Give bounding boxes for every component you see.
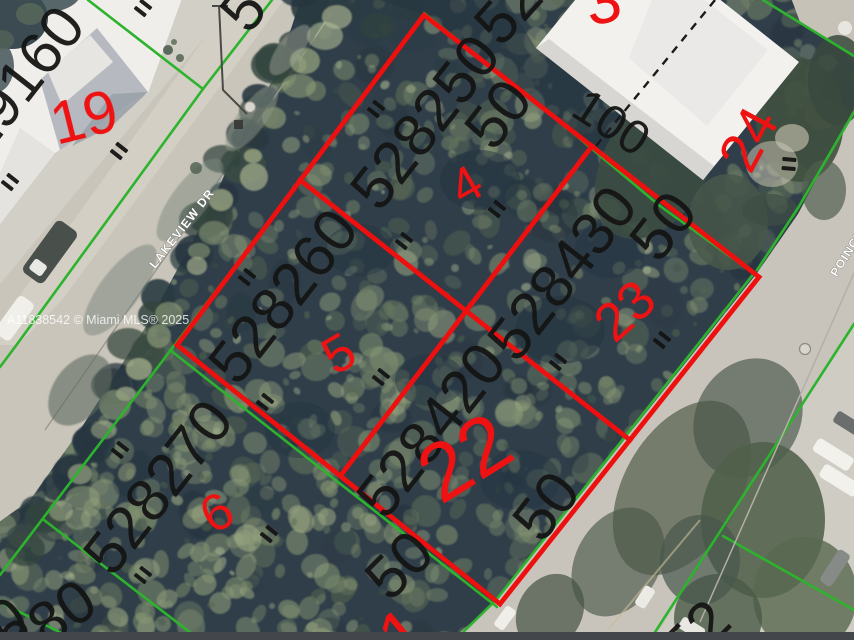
svg-text:A11838542 © Miami MLS® 2025: A11838542 © Miami MLS® 2025 xyxy=(7,313,189,327)
